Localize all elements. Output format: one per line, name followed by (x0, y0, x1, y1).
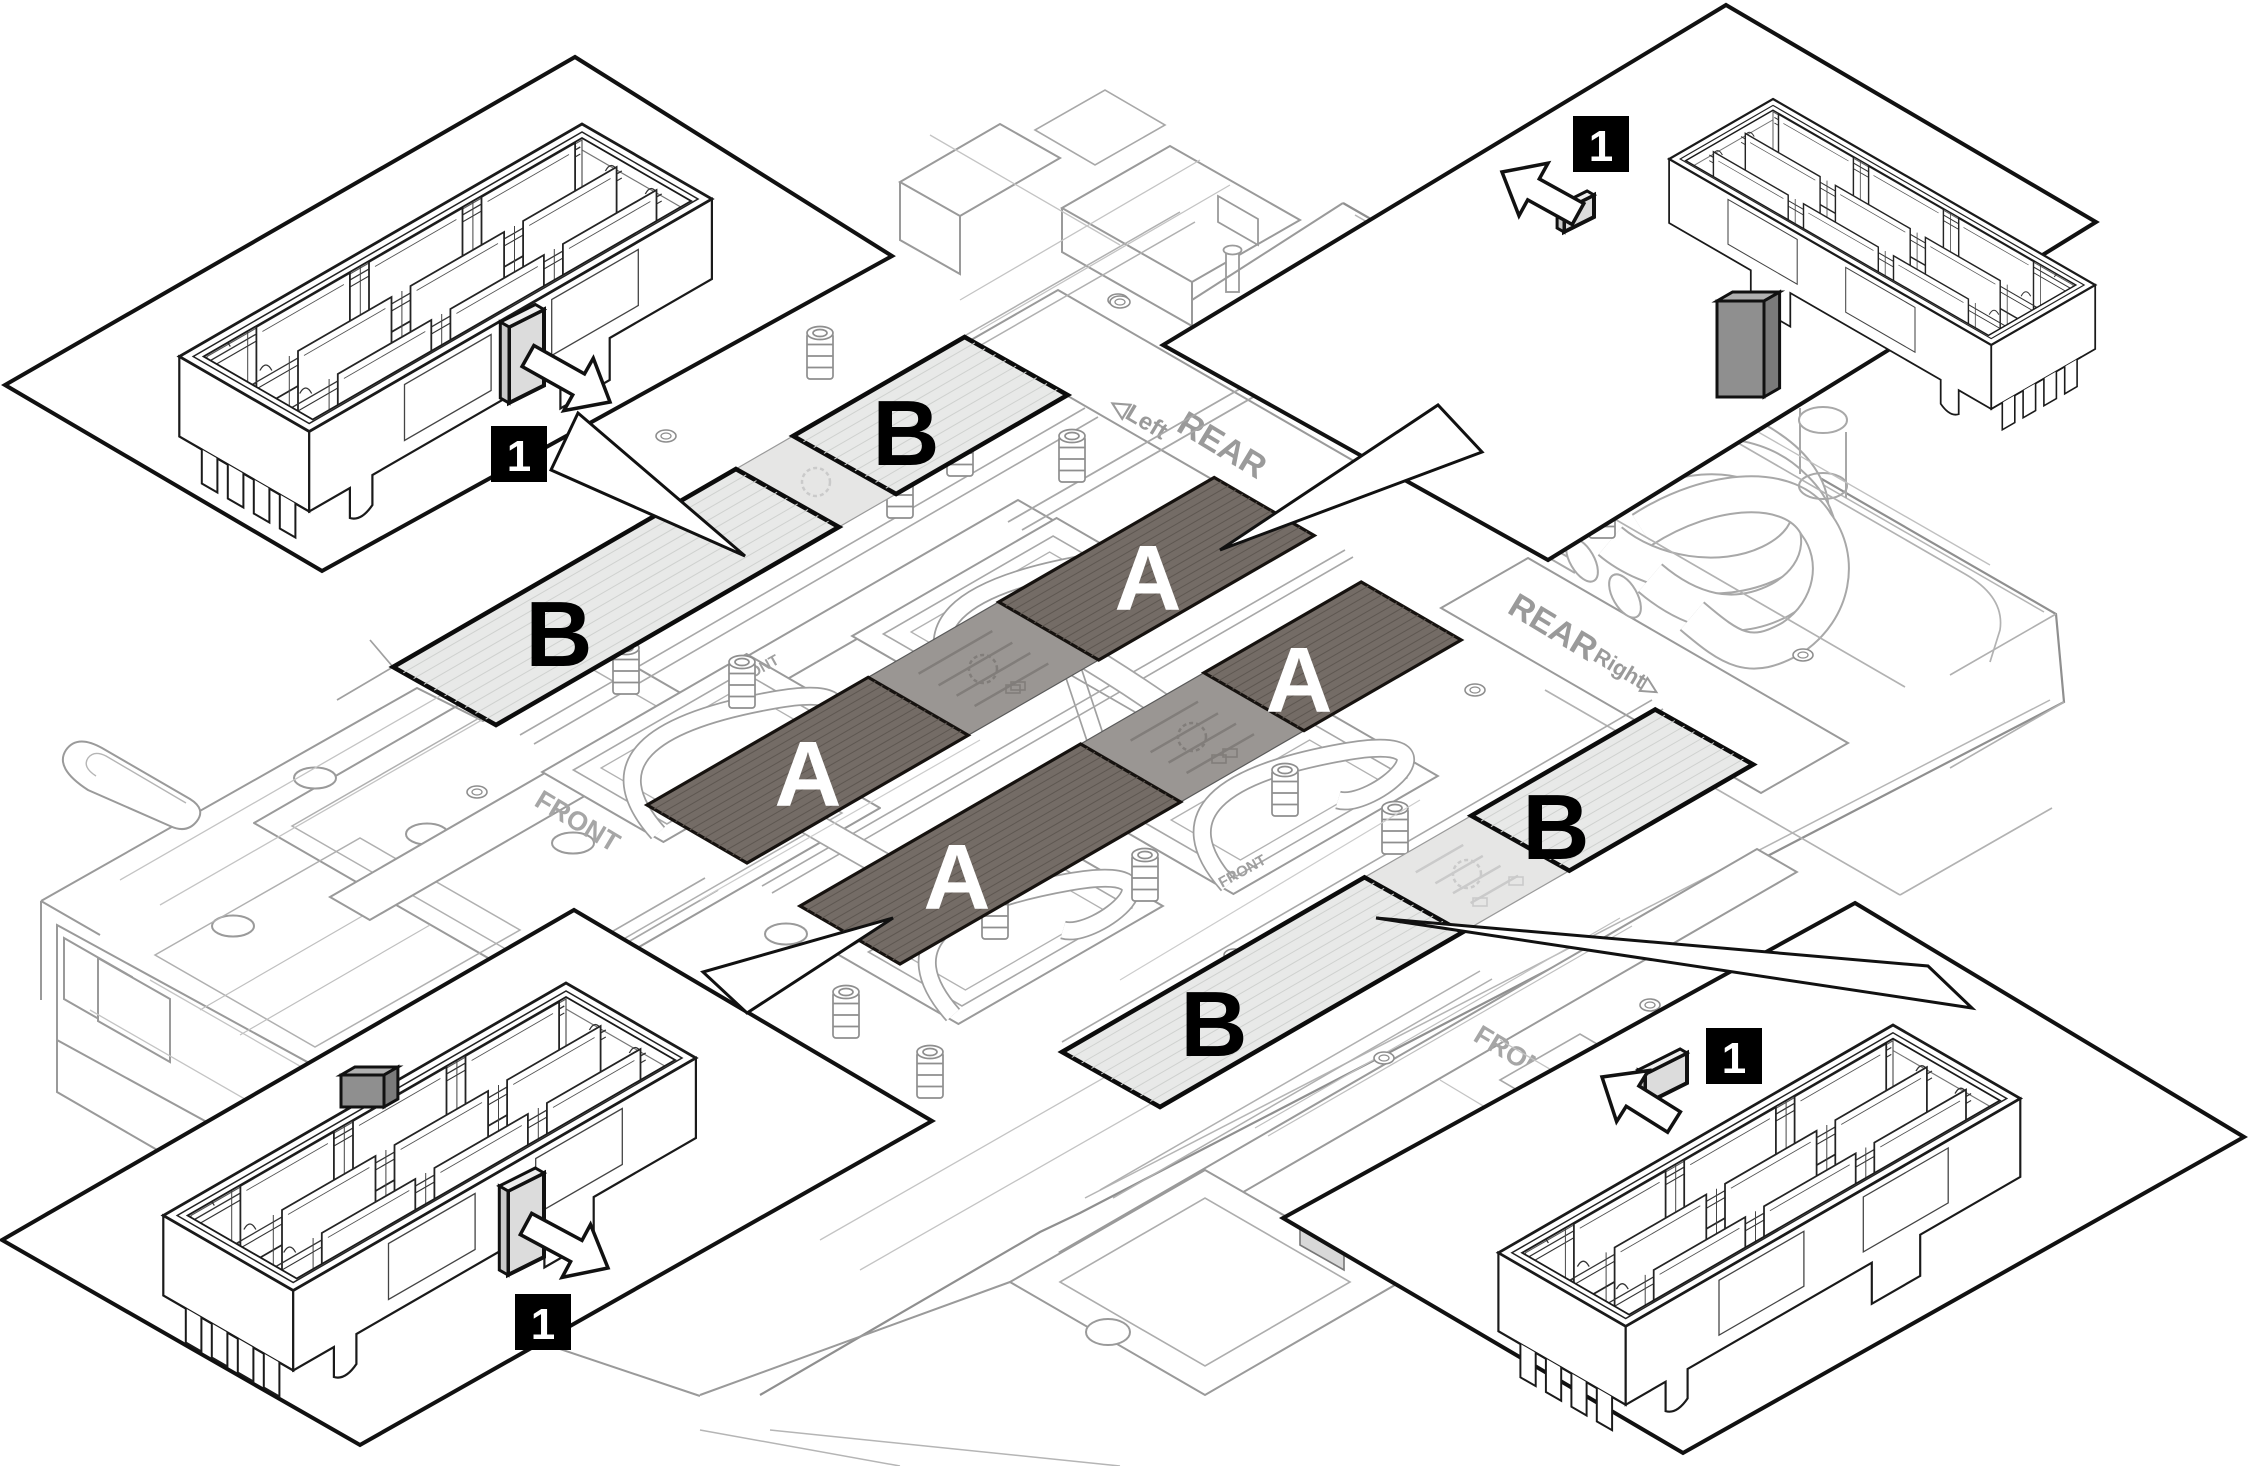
svg-text:B: B (872, 381, 939, 485)
svg-text:1: 1 (531, 1300, 555, 1349)
svg-text:B: B (1522, 775, 1589, 879)
svg-text:1: 1 (507, 432, 531, 481)
svg-text:B: B (1180, 972, 1247, 1076)
svg-text:1: 1 (1589, 122, 1613, 171)
svg-text:1: 1 (1722, 1034, 1746, 1083)
svg-text:A: A (1265, 628, 1332, 732)
svg-text:B: B (525, 582, 592, 686)
svg-text:A: A (1114, 526, 1181, 630)
svg-text:A: A (774, 722, 841, 826)
svg-text:A: A (923, 825, 990, 929)
